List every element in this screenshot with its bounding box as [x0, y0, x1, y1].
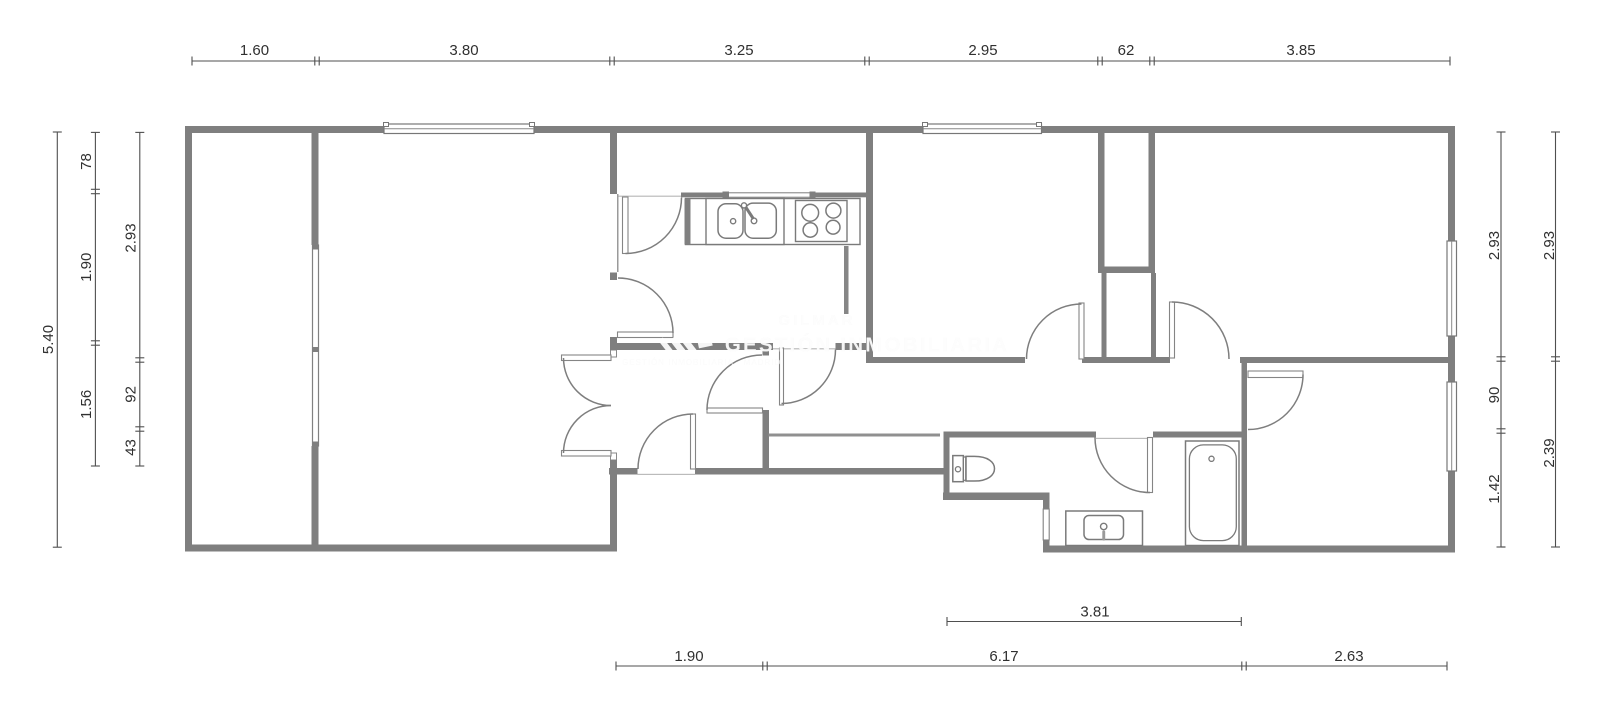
svg-text:GILMAR: GILMAR [778, 312, 855, 329]
svg-text:2.95: 2.95 [968, 42, 997, 59]
svg-text:3.25: 3.25 [724, 42, 753, 59]
svg-text:GESTIÓN INMOBILIARIA: GESTIÓN INMOBILIARIA [725, 333, 1009, 357]
svg-text:1.90: 1.90 [78, 253, 95, 282]
svg-text:2.63: 2.63 [1334, 648, 1363, 665]
svg-text:1.42: 1.42 [1486, 474, 1503, 503]
svg-text:2.39: 2.39 [1541, 438, 1558, 467]
svg-text:90: 90 [1486, 387, 1503, 404]
svg-text:1.90: 1.90 [674, 648, 703, 665]
svg-text:5.40: 5.40 [40, 325, 57, 354]
svg-text:78: 78 [78, 153, 95, 170]
svg-text:43: 43 [122, 439, 139, 456]
svg-text:62: 62 [1118, 42, 1135, 59]
svg-text:3.80: 3.80 [449, 42, 478, 59]
svg-text:3.81: 3.81 [1080, 604, 1109, 621]
svg-text:92: 92 [122, 386, 139, 403]
svg-text:3.85: 3.85 [1286, 42, 1315, 59]
svg-text:1.56: 1.56 [78, 390, 95, 419]
svg-text:2.93: 2.93 [1541, 231, 1558, 260]
svg-text:2.93: 2.93 [1486, 231, 1503, 260]
svg-text:GESTIÓN INMOBILIARIA · MADRID: GESTIÓN INMOBILIARIA · MADRID [622, 358, 781, 367]
svg-text:6.17: 6.17 [989, 648, 1018, 665]
svg-text:1.60: 1.60 [240, 42, 269, 59]
svg-text:2.93: 2.93 [122, 223, 139, 252]
